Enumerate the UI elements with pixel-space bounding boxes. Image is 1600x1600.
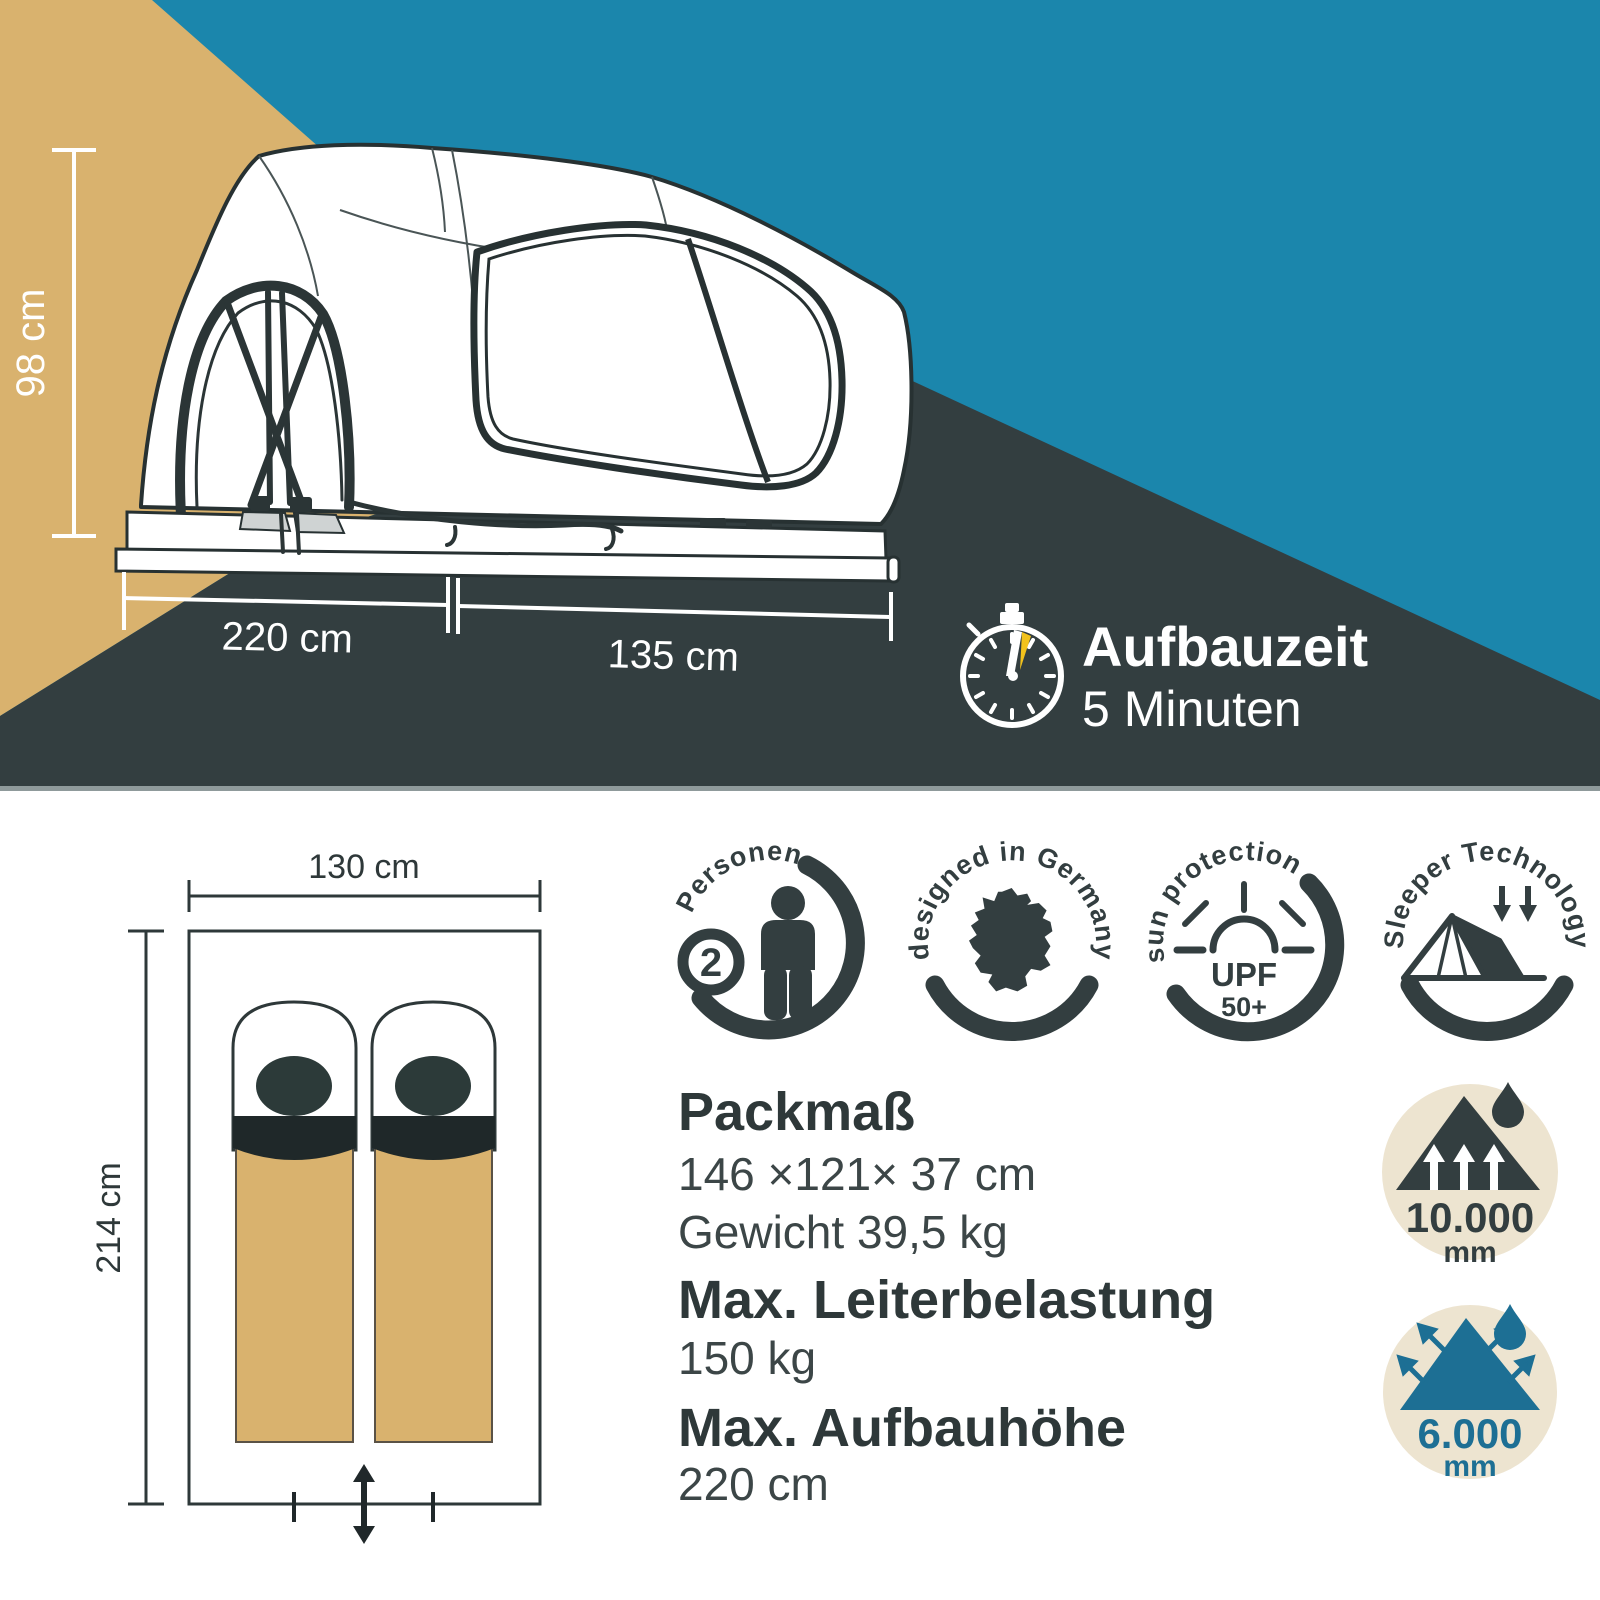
- tent-icon: [1404, 886, 1544, 978]
- setup-time-title: Aufbauzeit: [1082, 615, 1368, 678]
- setup-time-value: 5 Minuten: [1082, 681, 1302, 737]
- badge-sun-protection: sun protection UPF 50+: [1139, 836, 1335, 1032]
- badge-persons: Personen 2: [670, 836, 855, 1030]
- spec-packmass-weight: Gewicht 39,5 kg: [678, 1206, 1008, 1258]
- upf-label: UPF: [1211, 956, 1277, 993]
- sleeping-bag: [372, 1002, 495, 1442]
- spec-ladder-title: Max. Leiterbelastung: [678, 1270, 1215, 1330]
- sun-icon: [1177, 884, 1311, 950]
- section-divider: [0, 786, 1600, 791]
- spec-packmass-title: Packmaß: [678, 1082, 915, 1142]
- badge-sleeper-technology: Sleeper Technology: [1379, 836, 1596, 1031]
- badge-designed-in-germany: designed in Germany: [904, 836, 1121, 1031]
- spec-packmass-dimensions: 146 ×121× 37 cm: [678, 1148, 1036, 1200]
- spec-list: Packmaß 146 ×121× 37 cm Gewicht 39,5 kg …: [678, 1082, 1215, 1510]
- waterproof-value: 10.000: [1406, 1194, 1534, 1241]
- floor-plan-width-label: 130 cm: [308, 848, 420, 886]
- tent-infographic: 98 cm 220 cm 135 cm: [0, 0, 1600, 1600]
- germany-map-icon: [969, 888, 1052, 991]
- breathable-badge: 6.000 mm: [1383, 1304, 1557, 1483]
- upf-rating: 50+: [1221, 992, 1267, 1022]
- height-dimension-label: 98 cm: [9, 289, 53, 398]
- top-banner: 98 cm 220 cm 135 cm: [0, 0, 1600, 791]
- persons-count: 2: [700, 941, 722, 985]
- spec-ladder-value: 150 kg: [678, 1332, 816, 1384]
- waterproof-unit: mm: [1443, 1236, 1496, 1269]
- spec-height-value: 220 cm: [678, 1458, 829, 1510]
- base-length-label: 220 cm: [221, 615, 353, 662]
- sleeping-bag: [233, 1002, 356, 1442]
- floor-plan: 130 cm 214 cm: [90, 848, 540, 1544]
- floor-plan-length-label: 214 cm: [90, 1162, 128, 1274]
- person-icon: [761, 886, 815, 1020]
- infographic-canvas: 98 cm 220 cm 135 cm: [0, 0, 1600, 1600]
- waterproof-badge: 10.000 mm: [1382, 1082, 1558, 1269]
- breathable-unit: mm: [1443, 1450, 1496, 1483]
- extension-length-label: 135 cm: [607, 632, 739, 680]
- arrow-down-icon: [1493, 886, 1537, 922]
- spec-height-title: Max. Aufbauhöhe: [678, 1398, 1126, 1458]
